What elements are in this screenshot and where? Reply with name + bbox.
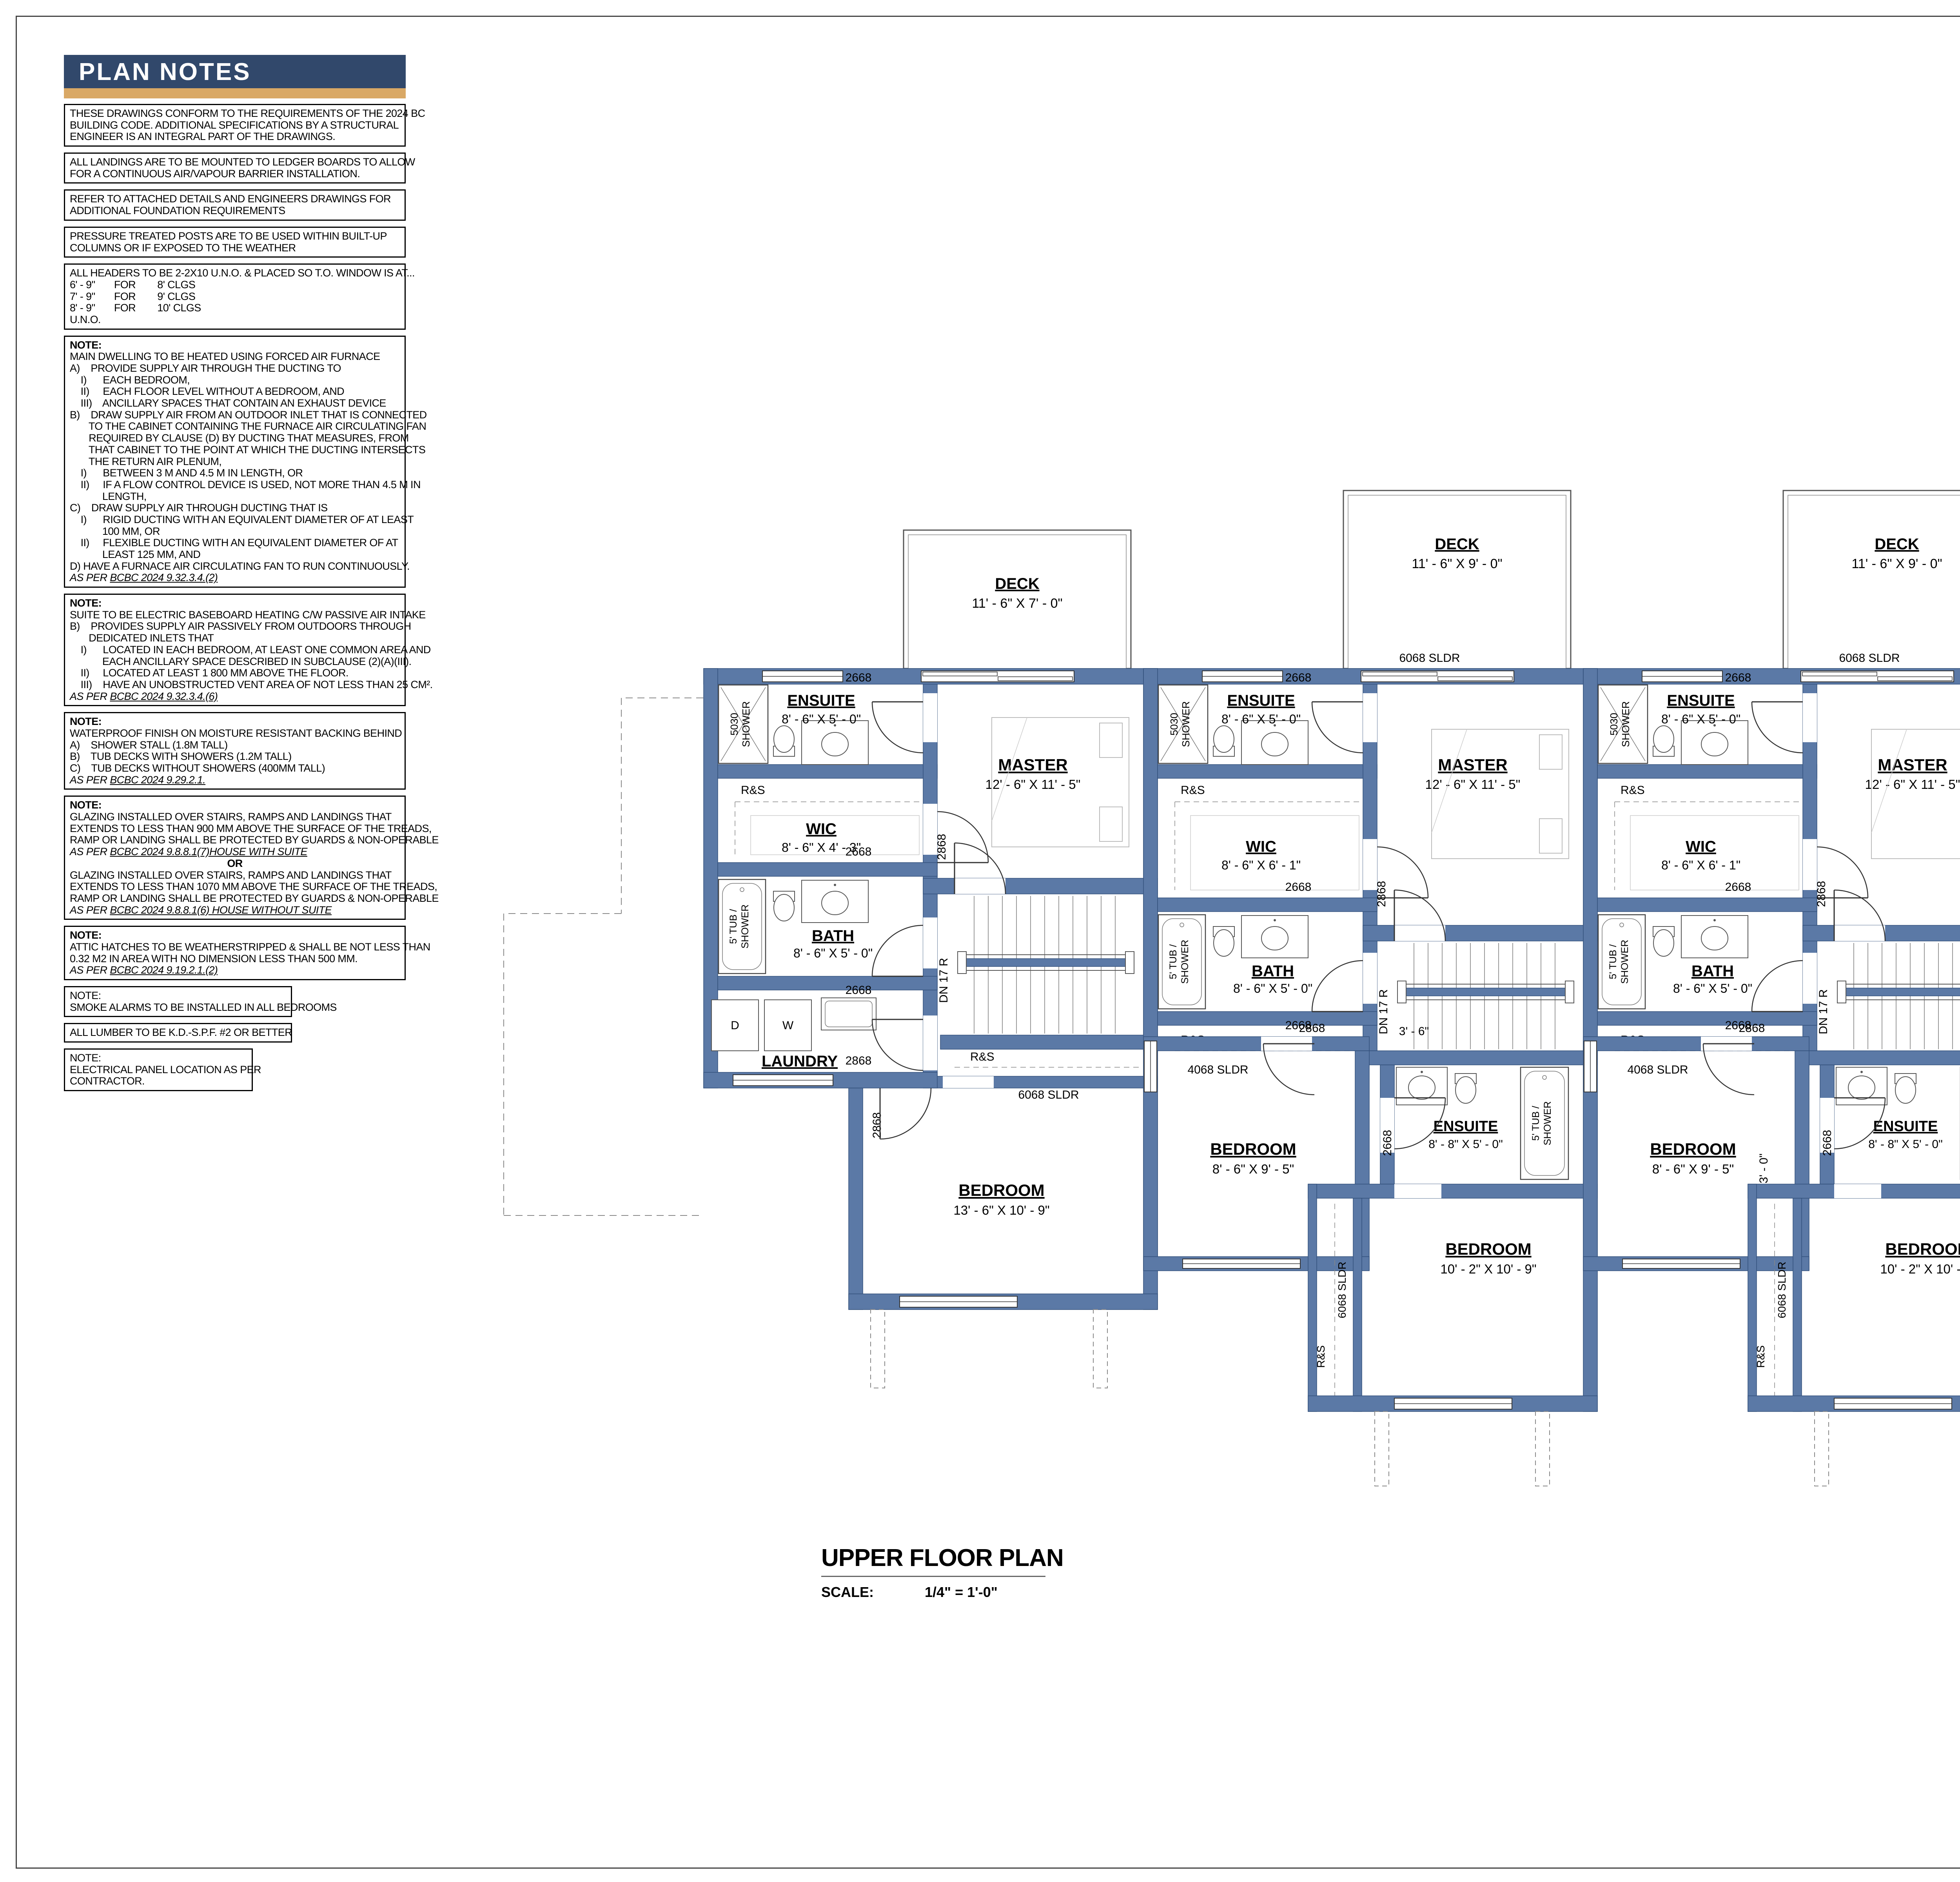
door-label: 2868 bbox=[1815, 881, 1828, 907]
sink bbox=[1261, 926, 1288, 950]
room-label-wic: WIC bbox=[1246, 838, 1276, 856]
sink bbox=[1701, 926, 1728, 950]
note-box-3: REFER TO ATTACHED DETAILS AND ENGINEERS … bbox=[64, 189, 406, 220]
bed bbox=[1432, 729, 1569, 859]
tub-label: SHOWER bbox=[1180, 940, 1191, 984]
interior-wall bbox=[1353, 1198, 1362, 1411]
party-wall bbox=[1143, 669, 1158, 1270]
toilet bbox=[1214, 930, 1234, 956]
room-label-bedroom2: BEDROOM bbox=[1445, 1240, 1531, 1258]
plan-scale: SCALE:1/4" = 1'-0" bbox=[821, 1584, 1331, 1600]
room-dim-wic: 8' - 6" X 6' - 1" bbox=[1661, 858, 1740, 872]
door-label: 2868 bbox=[1299, 1022, 1325, 1035]
sink bbox=[1848, 1076, 1875, 1099]
rod-shelf-label: R&S bbox=[1755, 1345, 1767, 1368]
door-label: 2668 bbox=[1725, 671, 1751, 684]
slider-label: 4068 SLDR bbox=[1627, 1063, 1688, 1076]
note-box-11: NOTE:SMOKE ALARMS TO BE INSTALLED IN ALL… bbox=[64, 986, 292, 1017]
floor-plan-drawing: DECK11' - 6" X 7' - 0"5030SHOWERENSUITE8… bbox=[470, 463, 1960, 1513]
door-swing bbox=[872, 1019, 923, 1070]
rod-shelf-label: R&S bbox=[741, 784, 765, 797]
interior-wall bbox=[718, 976, 937, 990]
post-below bbox=[1535, 1411, 1550, 1486]
pillow bbox=[1539, 735, 1562, 769]
note-box-1: THESE DRAWINGS CONFORM TO THE REQUIREMEN… bbox=[64, 104, 406, 147]
room-label-bedroom2: BEDROOM bbox=[1885, 1240, 1960, 1258]
plan-scale-value: 1/4" = 1'-0" bbox=[925, 1584, 998, 1600]
post-below bbox=[1375, 1411, 1389, 1486]
plan-title: UPPER FLOOR PLAN bbox=[821, 1544, 1331, 1572]
toilet bbox=[1895, 1077, 1916, 1103]
room-label-bedroom: BEDROOM bbox=[958, 1181, 1044, 1199]
note-box-10: NOTE:ATTIC HATCHES TO BE WEATHERSTRIPPED… bbox=[64, 926, 406, 980]
slider-label: 6068 SLDR bbox=[1336, 1262, 1348, 1319]
door-label: 2668 bbox=[1285, 671, 1312, 684]
door-swing bbox=[1312, 702, 1363, 753]
interior-wall bbox=[1158, 765, 1377, 778]
slider-label: 6068 SLDR bbox=[1776, 1262, 1788, 1319]
party-wall bbox=[1583, 669, 1597, 1270]
door-swing bbox=[1752, 961, 1803, 1012]
note-box-6: NOTE:MAIN DWELLING TO BE HEATED USING FO… bbox=[64, 336, 406, 588]
interior-wall bbox=[1597, 898, 1817, 912]
hall-dim: 3' - 6" bbox=[1399, 1025, 1429, 1038]
door-label: 2668 bbox=[1285, 881, 1312, 894]
interior-wall bbox=[718, 863, 937, 876]
note-box-4: PRESSURE TREATED POSTS ARE TO BE USED WI… bbox=[64, 227, 406, 258]
toilet bbox=[1214, 726, 1234, 752]
room-dim-bath: 8' - 6" X 5' - 0" bbox=[793, 946, 873, 960]
door-label: 2868 bbox=[1375, 881, 1388, 907]
note-box-12: ALL LUMBER TO BE K.D.-S.P.F. #2 OR BETTE… bbox=[64, 1023, 292, 1043]
room-label-bedroom1: BEDROOM bbox=[1650, 1140, 1736, 1158]
plan-notes-title: PLAN NOTES bbox=[64, 55, 406, 88]
interior-wall bbox=[940, 1035, 1158, 1049]
deck-label: DECK bbox=[1435, 536, 1479, 553]
rod-shelf-label: R&S bbox=[970, 1050, 995, 1063]
hall-dim: 3' - 0" bbox=[1757, 1154, 1770, 1183]
washer-label: W bbox=[782, 1019, 794, 1032]
sink bbox=[822, 891, 848, 915]
interior-wall bbox=[1597, 765, 1817, 778]
sink bbox=[822, 732, 848, 756]
note-box-8: NOTE:WATERPROOF FINISH ON MOISTURE RESIS… bbox=[64, 712, 406, 790]
door-label: 2668 bbox=[1381, 1130, 1394, 1156]
plan-scale-label: SCALE: bbox=[821, 1584, 874, 1600]
door-label: 2868 bbox=[1739, 1022, 1765, 1035]
door-label: 2868 bbox=[935, 834, 948, 860]
room-dim-ensuite: 8' - 6" X 5' - 0" bbox=[1661, 712, 1740, 726]
deck-dim: 11' - 6" X 9' - 0" bbox=[1851, 556, 1942, 571]
dryer-label: D bbox=[731, 1019, 739, 1032]
tub-label: SHOWER bbox=[740, 905, 751, 949]
room-label-bath: BATH bbox=[1252, 963, 1294, 980]
interior-wall bbox=[1793, 1198, 1802, 1411]
toilet bbox=[1455, 1077, 1476, 1103]
interior-wall bbox=[1158, 1012, 1377, 1025]
plan-title-rule bbox=[821, 1576, 1045, 1577]
tub-label: 5' TUB / bbox=[1530, 1106, 1541, 1141]
deck-dim: 11' - 6" X 9' - 0" bbox=[1412, 556, 1502, 571]
slider-label: 6068 SLDR bbox=[1018, 1088, 1079, 1101]
room-label-ensuite: ENSUITE bbox=[1667, 692, 1735, 709]
pillow bbox=[1539, 819, 1562, 853]
shower-label: 5030 bbox=[1608, 713, 1620, 736]
interior-wall bbox=[718, 765, 937, 778]
stair-direction-label: DN 17 R bbox=[1817, 989, 1830, 1034]
room-dim-ensuite: 8' - 6" X 5' - 0" bbox=[1221, 712, 1301, 726]
room-dim-bedroom1: 8' - 6" X 9' - 5" bbox=[1212, 1162, 1294, 1176]
tub-label: 5' TUB / bbox=[728, 909, 739, 944]
room-dim-bath: 8' - 6" X 5' - 0" bbox=[1673, 981, 1752, 995]
plan-notes-panel: PLAN NOTES THESE DRAWINGS CONFORM TO THE… bbox=[64, 55, 406, 1091]
tub-label: SHOWER bbox=[1619, 940, 1630, 984]
shower-label: SHOWER bbox=[1180, 701, 1192, 747]
stair-direction-label: DN 17 R bbox=[937, 958, 950, 1003]
shower-label: 5030 bbox=[1168, 713, 1180, 736]
plan-notes-gold-bar bbox=[64, 88, 406, 98]
door-swing bbox=[872, 702, 923, 753]
door-swing bbox=[1703, 1044, 1754, 1095]
room-label-wic: WIC bbox=[1686, 838, 1716, 856]
room-dim-bedroom2: 10' - 2" X 10' - 9" bbox=[1880, 1262, 1960, 1276]
room-label-bath: BATH bbox=[1691, 963, 1734, 980]
sink bbox=[1701, 732, 1728, 756]
interior-wall bbox=[1583, 1037, 1809, 1051]
room-dim-master: 12' - 6" X 11' - 5" bbox=[1865, 777, 1960, 792]
door-swing bbox=[1263, 1044, 1314, 1095]
deck-dim: 11' - 6" X 7' - 0" bbox=[972, 596, 1062, 611]
toilet bbox=[1653, 930, 1674, 956]
door-label: 2668 bbox=[846, 671, 872, 684]
door-label: 2868 bbox=[871, 1112, 884, 1139]
exterior-wall bbox=[849, 1088, 863, 1310]
door-swing bbox=[1752, 702, 1803, 753]
tub-label: 5' TUB / bbox=[1168, 944, 1179, 979]
interior-wall bbox=[1803, 1051, 1960, 1065]
rod-shelf-label: R&S bbox=[1315, 1345, 1327, 1368]
room-dim-master: 12' - 6" X 11' - 5" bbox=[1425, 777, 1521, 792]
room-label-ensuite2: ENSUITE bbox=[1873, 1118, 1938, 1135]
toilet bbox=[774, 894, 794, 921]
interior-wall bbox=[1308, 1184, 1317, 1411]
room-dim-wic: 8' - 6" X 6' - 1" bbox=[1221, 858, 1301, 872]
interior-wall bbox=[1363, 1051, 1597, 1065]
slider-label: 6068 SLDR bbox=[1839, 652, 1900, 665]
toilet bbox=[1653, 726, 1674, 752]
stair-rail bbox=[1400, 988, 1569, 996]
door-swing bbox=[1312, 961, 1363, 1012]
tub-label: 5' TUB / bbox=[1608, 944, 1619, 979]
deck-label: DECK bbox=[995, 575, 1039, 592]
interior-wall bbox=[1158, 898, 1377, 912]
room-label-laundry: LAUNDRY bbox=[762, 1053, 838, 1070]
room-dim-bedroom: 13' - 6" X 10' - 9" bbox=[953, 1203, 1049, 1217]
rod-shelf-label: R&S bbox=[1621, 784, 1645, 797]
post-below bbox=[1093, 1310, 1107, 1388]
deck-label: DECK bbox=[1875, 536, 1919, 553]
room-label-bedroom1: BEDROOM bbox=[1210, 1140, 1296, 1158]
room-label-ensuite: ENSUITE bbox=[787, 692, 855, 709]
sink bbox=[1408, 1076, 1435, 1099]
room-dim-ensuite2: 8' - 8" X 5' - 0" bbox=[1428, 1138, 1503, 1151]
post-below bbox=[871, 1310, 885, 1388]
post-below bbox=[1815, 1411, 1829, 1486]
toilet bbox=[774, 726, 794, 752]
sink bbox=[1261, 732, 1288, 756]
interior-wall bbox=[1143, 1037, 1369, 1051]
shower-label: SHOWER bbox=[740, 701, 752, 747]
interior-wall bbox=[1748, 1184, 1757, 1411]
shower-label: 5030 bbox=[728, 713, 740, 736]
room-dim-bedroom1: 8' - 6" X 9' - 5" bbox=[1652, 1162, 1734, 1176]
interior-wall bbox=[1597, 1012, 1817, 1025]
door-label: 2868 bbox=[846, 1054, 872, 1067]
room-label-ensuite: ENSUITE bbox=[1227, 692, 1295, 709]
stair-rail bbox=[1840, 988, 1960, 996]
note-box-5: ALL HEADERS TO BE 2-2X10 U.N.O. & PLACED… bbox=[64, 263, 406, 329]
plan-notes-list: THESE DRAWINGS CONFORM TO THE REQUIREMEN… bbox=[64, 104, 406, 1091]
pillow bbox=[1100, 807, 1122, 841]
door-label: 2668 bbox=[1725, 881, 1751, 894]
stair-direction-label: DN 17 R bbox=[1377, 989, 1390, 1034]
note-box-13: NOTE:ELECTRICAL PANEL LOCATION AS PERCON… bbox=[64, 1048, 253, 1091]
slider-label: 4068 SLDR bbox=[1187, 1063, 1248, 1076]
door-label: 2668 bbox=[846, 845, 872, 858]
pillow bbox=[1100, 723, 1122, 758]
stair-rail bbox=[960, 959, 1129, 966]
room-label-bath: BATH bbox=[812, 927, 854, 945]
rod-shelf-label: R&S bbox=[1181, 784, 1205, 797]
room-label-master: MASTER bbox=[1878, 756, 1947, 774]
room-label-master: MASTER bbox=[1438, 756, 1507, 774]
plan-title-block: UPPER FLOOR PLAN SCALE:1/4" = 1'-0" bbox=[821, 1544, 1331, 1600]
room-dim-ensuite: 8' - 6" X 5' - 0" bbox=[782, 712, 861, 726]
interior-wall bbox=[1308, 1184, 1597, 1198]
note-box-2: ALL LANDINGS ARE TO BE MOUNTED TO LEDGER… bbox=[64, 153, 406, 183]
door-swing bbox=[880, 1088, 931, 1139]
room-dim-ensuite2: 8' - 8" X 5' - 0" bbox=[1868, 1138, 1943, 1151]
note-box-9: NOTE:GLAZING INSTALLED OVER STAIRS, RAMP… bbox=[64, 796, 406, 920]
tub-label: SHOWER bbox=[1542, 1101, 1553, 1146]
room-dim-bath: 8' - 6" X 5' - 0" bbox=[1233, 981, 1312, 995]
slider-label: 6068 SLDR bbox=[1399, 652, 1460, 665]
room-label-wic: WIC bbox=[806, 821, 837, 838]
door-label: 2668 bbox=[1821, 1130, 1834, 1156]
shower-label: SHOWER bbox=[1620, 701, 1632, 747]
room-dim-bedroom2: 10' - 2" X 10' - 9" bbox=[1440, 1262, 1536, 1276]
door-label: 2668 bbox=[846, 984, 872, 997]
room-label-ensuite2: ENSUITE bbox=[1434, 1118, 1498, 1135]
room-dim-master: 12' - 6" X 11' - 5" bbox=[985, 777, 1081, 792]
note-box-7: NOTE:SUITE TO BE ELECTRIC BASEBOARD HEAT… bbox=[64, 594, 406, 706]
door-swing bbox=[872, 925, 923, 976]
